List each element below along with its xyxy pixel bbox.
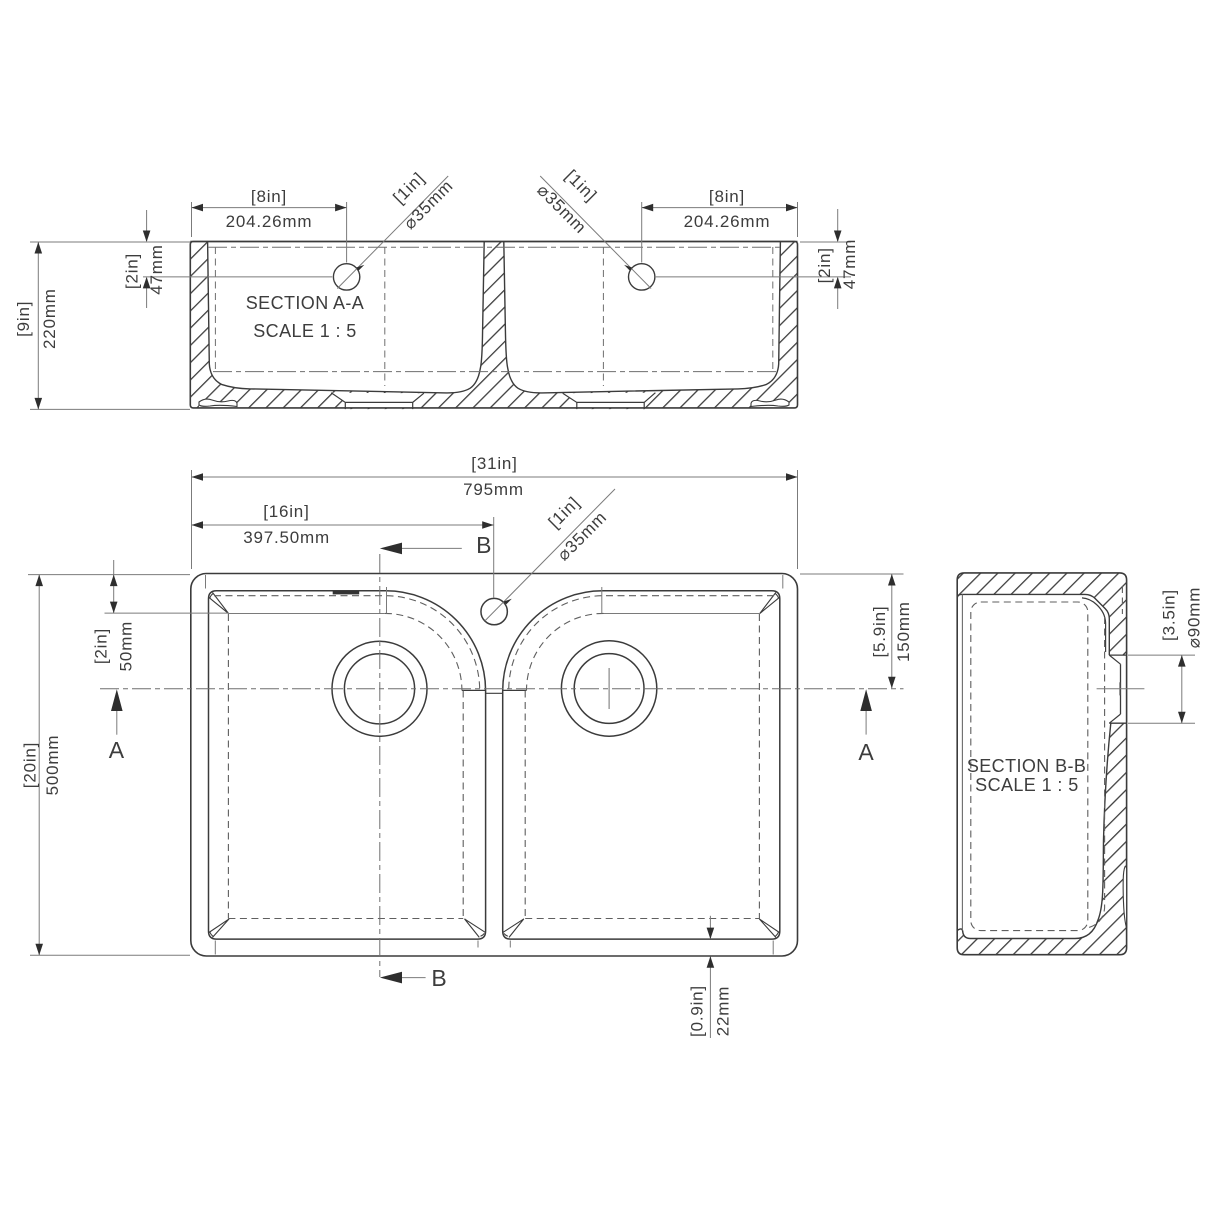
svg-text:SECTION B-B: SECTION B-B: [967, 756, 1086, 776]
svg-text:[20in]: [20in]: [21, 742, 40, 788]
svg-text:[2in]: [2in]: [91, 628, 110, 664]
svg-text:22mm: 22mm: [713, 986, 732, 1036]
svg-text:[2in]: [2in]: [815, 247, 834, 283]
svg-text:[16in]: [16in]: [263, 502, 309, 521]
svg-text:[3.5in]: [3.5in]: [1159, 589, 1178, 641]
svg-text:47mm: 47mm: [147, 244, 166, 294]
svg-text:A: A: [109, 737, 125, 763]
svg-text:150mm: 150mm: [894, 601, 913, 662]
svg-text:[5.9in]: [5.9in]: [870, 606, 889, 658]
svg-text:220mm: 220mm: [40, 288, 59, 349]
svg-text:204.26mm: 204.26mm: [684, 212, 771, 231]
svg-text:[31in]: [31in]: [471, 454, 517, 473]
svg-text:[9in]: [9in]: [14, 301, 33, 337]
svg-text:[8in]: [8in]: [709, 187, 745, 206]
svg-text:50mm: 50mm: [117, 621, 136, 671]
svg-text:500mm: 500mm: [43, 735, 62, 796]
svg-text:A: A: [858, 739, 874, 765]
svg-text:⌀90mm: ⌀90mm: [1185, 587, 1204, 648]
svg-text:[2in]: [2in]: [123, 253, 142, 289]
svg-text:B: B: [476, 532, 491, 558]
svg-text:[8in]: [8in]: [251, 187, 287, 206]
svg-text:47mm: 47mm: [840, 239, 859, 289]
svg-text:B: B: [431, 965, 446, 991]
svg-text:SECTION A-A: SECTION A-A: [246, 293, 364, 313]
svg-text:795mm: 795mm: [463, 480, 524, 499]
svg-text:204.26mm: 204.26mm: [226, 212, 313, 231]
svg-text:[0.9in]: [0.9in]: [687, 985, 706, 1037]
svg-text:SCALE 1 : 5: SCALE 1 : 5: [253, 321, 356, 341]
svg-text:397.50mm: 397.50mm: [243, 528, 330, 547]
svg-text:SCALE 1 : 5: SCALE 1 : 5: [975, 775, 1078, 795]
